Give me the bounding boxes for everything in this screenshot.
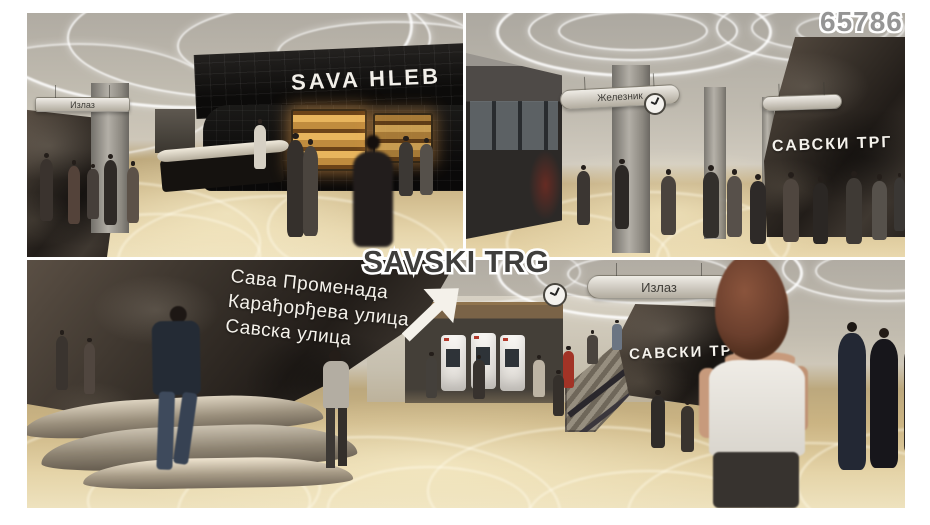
person-silhouette [302, 139, 319, 236]
person-body [587, 335, 597, 364]
person-silhouette [726, 169, 743, 237]
person-body [703, 172, 720, 238]
person-body [577, 171, 591, 225]
person-head [898, 173, 902, 177]
person-body [783, 179, 800, 242]
presentation-board: Излаз SAVA HLEB САВСКИ ТРГ Железник [0, 0, 930, 525]
person-head [847, 322, 857, 332]
render-metro-platform: САВСКИ ТРГ Железник [466, 13, 905, 257]
person-silhouette [533, 355, 545, 397]
person-head [477, 355, 481, 359]
person-silhouette [587, 330, 598, 364]
person-body [553, 375, 565, 416]
person-head [60, 330, 65, 335]
figure-leg [173, 392, 198, 465]
person-silhouette [702, 165, 720, 238]
person-body [904, 344, 905, 454]
person-body [68, 166, 81, 224]
person-silhouette [576, 165, 591, 225]
person-silhouette [253, 119, 267, 169]
person-silhouette [39, 153, 54, 221]
person-body [612, 324, 621, 350]
person-head [581, 165, 586, 170]
figure-leg [338, 408, 347, 466]
person-head [619, 159, 624, 164]
tvm-screen [505, 349, 519, 367]
person-silhouette [812, 176, 829, 244]
person-body [838, 333, 866, 470]
person-head [877, 174, 883, 180]
render-bakery-concourse: Излаз SAVA HLEB [27, 13, 463, 257]
person-body [303, 146, 319, 236]
figure-torso [323, 361, 349, 409]
person-silhouette [425, 352, 438, 398]
person-head [424, 138, 429, 143]
person-head [788, 172, 794, 178]
person-head [537, 355, 541, 359]
person-head [566, 346, 570, 350]
person-body [894, 178, 904, 231]
person-head [708, 165, 714, 171]
person-silhouette [398, 136, 414, 196]
person-body [40, 159, 54, 221]
person-body [56, 336, 69, 390]
person-silhouette [660, 169, 677, 235]
person-body [420, 144, 434, 195]
person-body [87, 169, 98, 219]
person-head [818, 176, 824, 182]
person-body [661, 176, 677, 235]
person-silhouette [552, 370, 565, 416]
person-silhouette [837, 322, 867, 470]
exit-sign-label: Излаз [641, 280, 677, 295]
corner-code-number: 65786 [820, 6, 903, 38]
person-silhouette [614, 159, 630, 229]
figure-leg [326, 408, 335, 468]
person-head [655, 390, 660, 395]
person-head [44, 153, 49, 158]
bakery-sign-label: SAVA HLEB [290, 63, 441, 96]
person-silhouette [903, 336, 905, 454]
walking-man-figure [132, 305, 220, 484]
person-body [846, 178, 863, 244]
person-head [403, 136, 408, 141]
person-body [870, 339, 898, 468]
person-head [666, 169, 672, 175]
exit-sign-plate: Излаз [35, 97, 130, 112]
ticket-vending-machine [500, 335, 525, 391]
person-body [254, 125, 267, 169]
person-head [615, 320, 618, 323]
figure-leg [156, 391, 175, 470]
person-silhouette [83, 338, 96, 394]
person-head [131, 161, 136, 166]
person-head [591, 330, 595, 334]
secondary-direction-sign [762, 94, 842, 112]
person-silhouette [419, 138, 434, 195]
train-windows [470, 101, 558, 149]
person-body [727, 176, 743, 237]
person-head [556, 370, 560, 374]
person-body [127, 167, 140, 223]
render-station-concourse: Сава Променада Карађорђева улица Савска … [27, 260, 905, 508]
person-head [292, 133, 298, 139]
person-body [750, 181, 767, 244]
train-red-accent [529, 150, 562, 221]
person-head [91, 164, 95, 168]
figure-torso [152, 321, 201, 396]
background-doorway [155, 109, 195, 153]
figure-hair [715, 260, 789, 360]
person-body [651, 396, 666, 448]
station-name-wall-text: САВСКИ ТРГ [772, 134, 893, 156]
person-silhouette [650, 390, 666, 448]
person-head [108, 154, 113, 159]
direction-sign-label: Железник [597, 90, 643, 103]
person-silhouette [749, 174, 767, 244]
person-body [426, 357, 438, 398]
project-title: SAVSKI TRG [363, 244, 549, 280]
person-silhouette [871, 174, 888, 240]
person-head [72, 160, 77, 165]
person-head [258, 119, 263, 124]
exit-sign-label: Излаз [70, 100, 95, 110]
person-head [879, 328, 889, 338]
person-silhouette [67, 160, 81, 224]
figure-pants [713, 452, 799, 508]
person-head [429, 352, 433, 356]
person-head [366, 135, 381, 150]
metro-train [466, 53, 562, 239]
person-silhouette [55, 330, 69, 390]
standing-man-figure [315, 350, 357, 472]
person-body [84, 343, 96, 394]
person-head [308, 139, 314, 145]
person-silhouette [782, 172, 800, 242]
person-head [851, 171, 857, 177]
person-body [104, 160, 118, 225]
person-silhouette [612, 320, 622, 350]
person-body [872, 181, 888, 240]
person-body [353, 151, 393, 247]
person-silhouette [869, 328, 899, 468]
person-silhouette [103, 154, 118, 225]
person-silhouette [126, 161, 140, 223]
person-head [87, 338, 91, 342]
person-silhouette [473, 355, 485, 399]
station-clock [644, 93, 666, 115]
person-silhouette [87, 164, 99, 219]
figure-top [709, 360, 805, 456]
person-body [399, 142, 414, 196]
person-body [533, 360, 544, 397]
person-silhouette [845, 171, 863, 244]
person-body [615, 165, 630, 229]
person-head [732, 169, 738, 175]
person-silhouette [351, 135, 395, 247]
foreground-woman-figure [687, 260, 817, 508]
station-clock [543, 283, 567, 307]
person-silhouette [894, 173, 905, 231]
person-body [473, 360, 484, 399]
person-head [755, 174, 761, 180]
person-body [813, 183, 829, 244]
tvm-screen [446, 349, 460, 367]
